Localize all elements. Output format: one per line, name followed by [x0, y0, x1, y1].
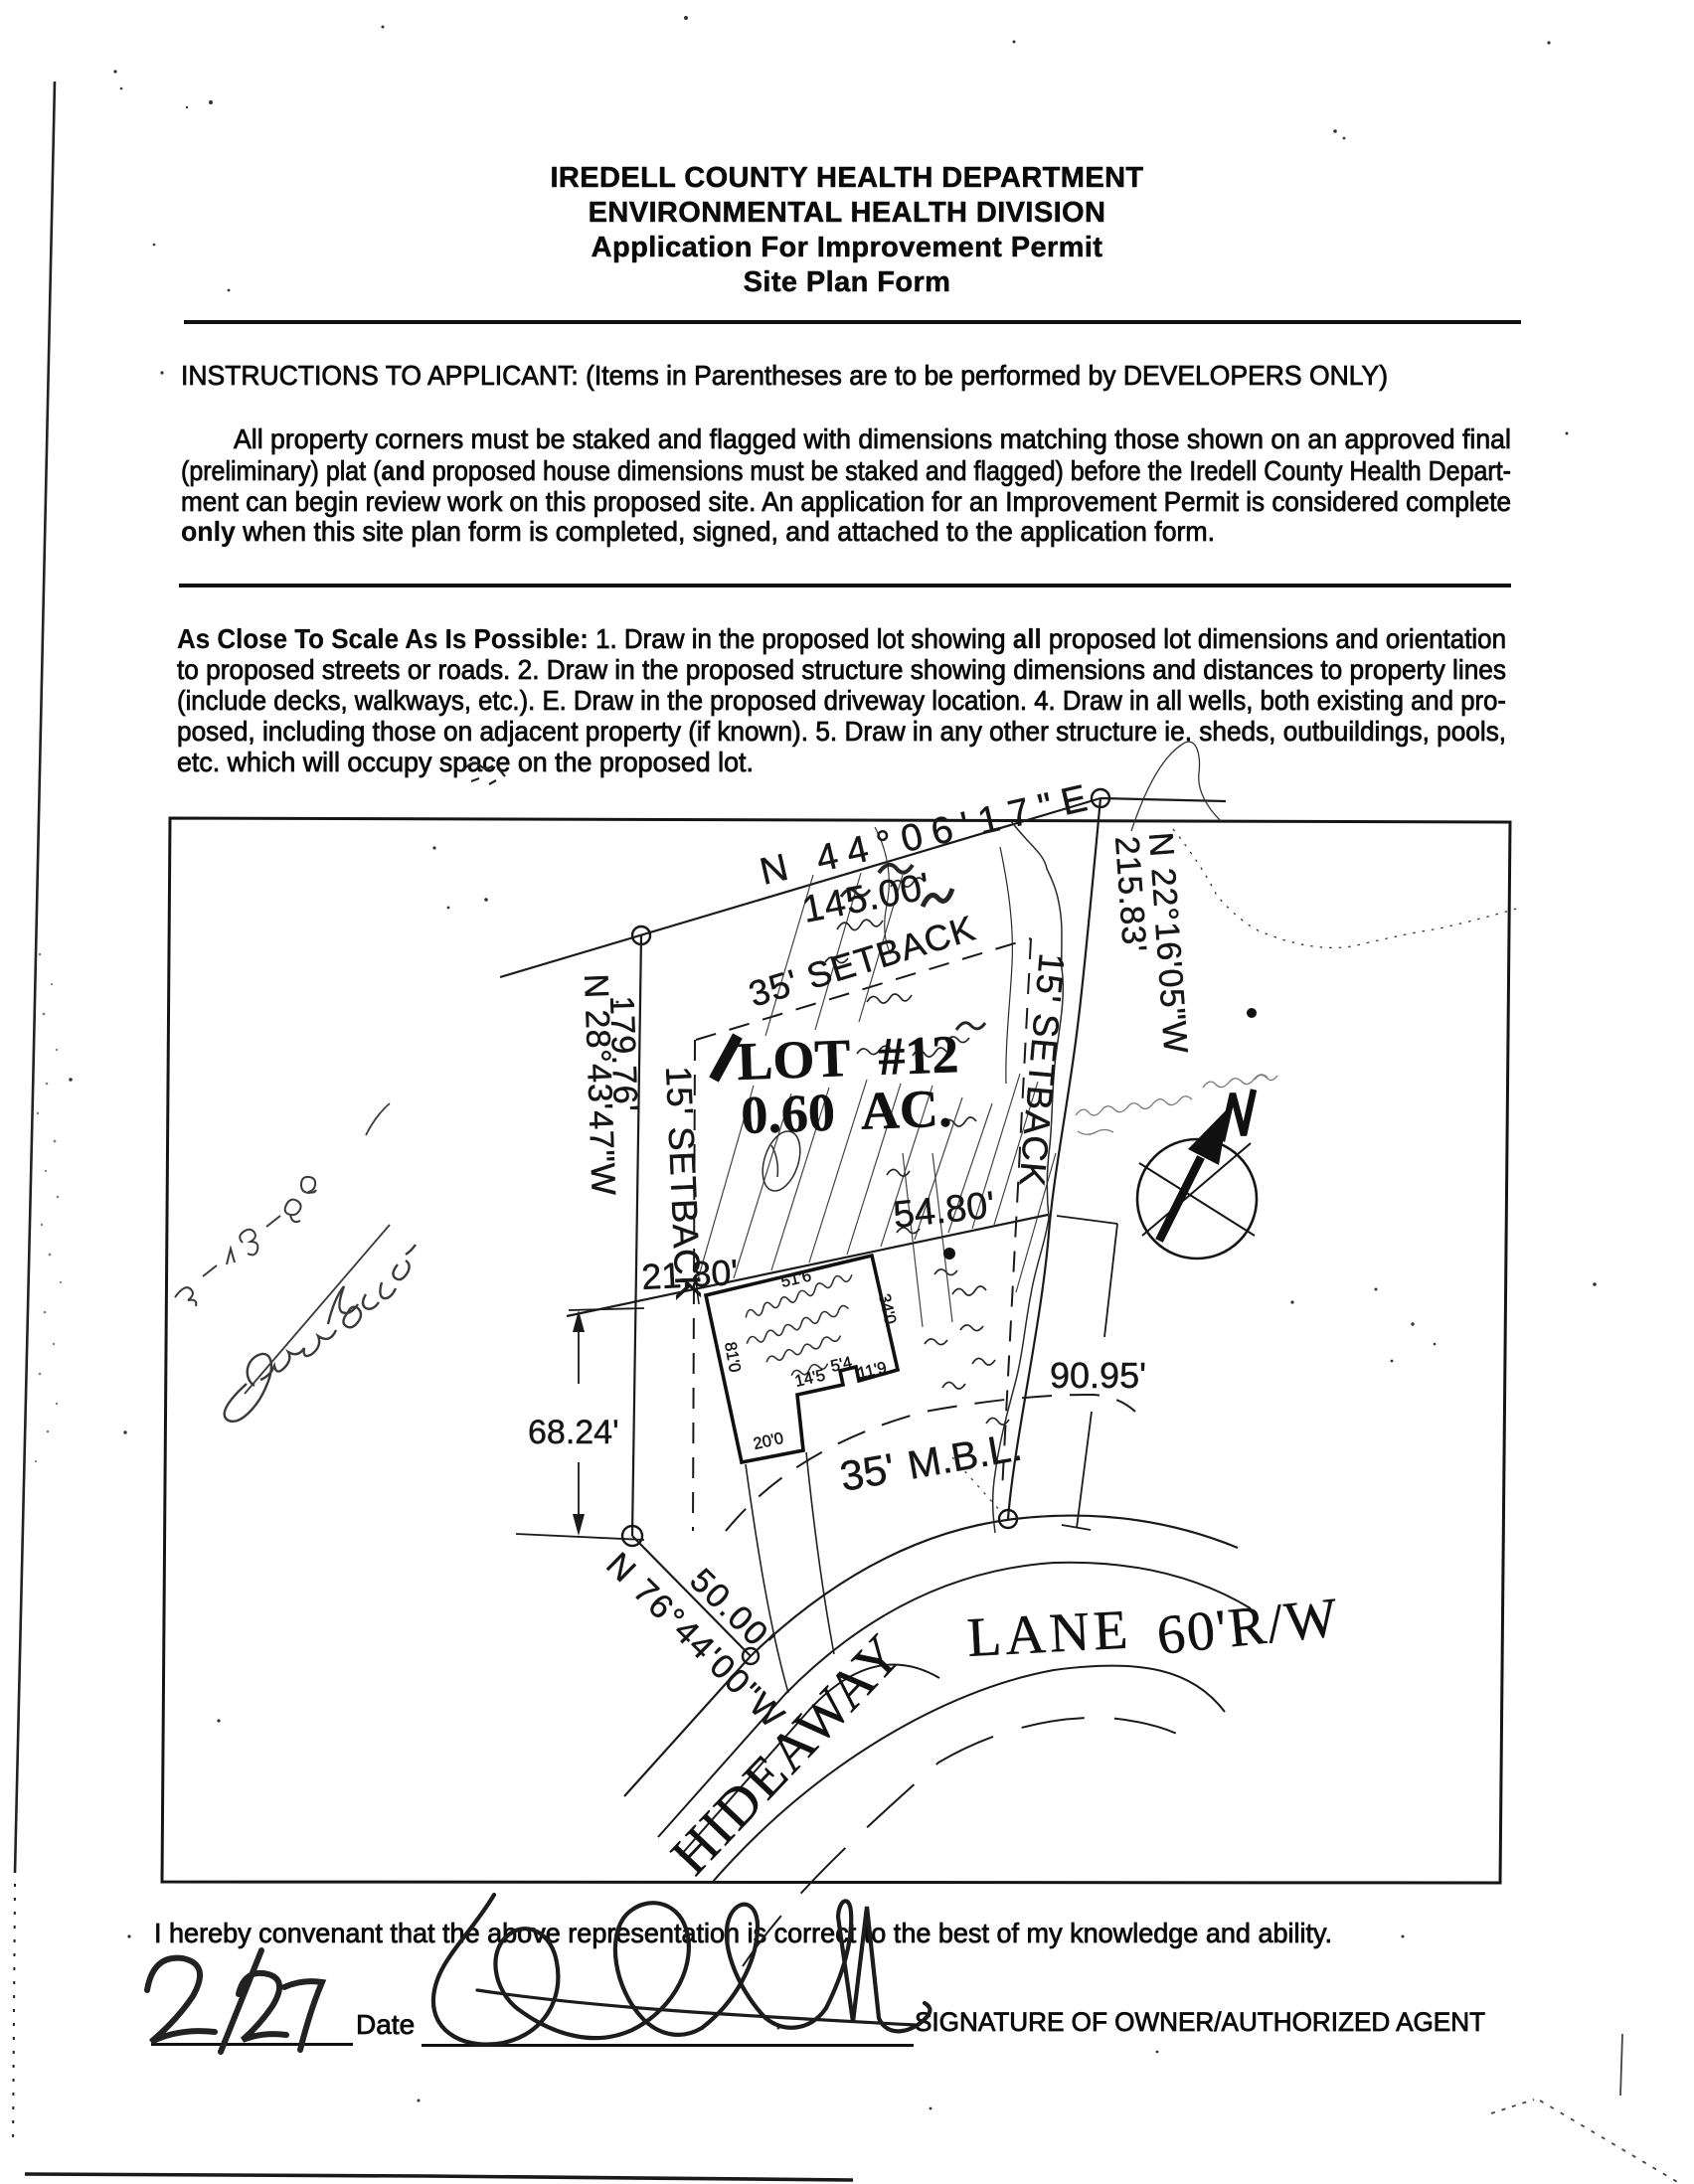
svg-text:20'0: 20'0 — [752, 1429, 785, 1453]
svg-text:34'0: 34'0 — [875, 1292, 899, 1326]
svg-text:35'M.B.L.: 35'M.B.L. — [836, 1423, 1025, 1500]
svg-text:5'4: 5'4 — [829, 1354, 854, 1376]
svg-text:179.76': 179.76' — [602, 995, 644, 1113]
svg-text:90.95': 90.95' — [1050, 1355, 1146, 1396]
svg-text:60'R/W: 60'R/W — [1154, 1587, 1342, 1667]
svg-text:21.80': 21.80' — [640, 1252, 739, 1297]
svg-text:15' SETBACK: 15' SETBACK — [1011, 951, 1072, 1189]
svg-text:0.60AC.: 0.60AC. — [740, 1079, 952, 1145]
svg-text:LANE: LANE — [965, 1598, 1132, 1669]
svg-text:N 44°06'17"E: N 44°06'17"E — [757, 775, 1101, 894]
svg-text:68.24': 68.24' — [528, 1414, 619, 1451]
svg-text:11'9: 11'9 — [856, 1359, 889, 1383]
svg-text:81'0: 81'0 — [721, 1341, 744, 1374]
svg-text:215.83': 215.83' — [1107, 835, 1153, 954]
